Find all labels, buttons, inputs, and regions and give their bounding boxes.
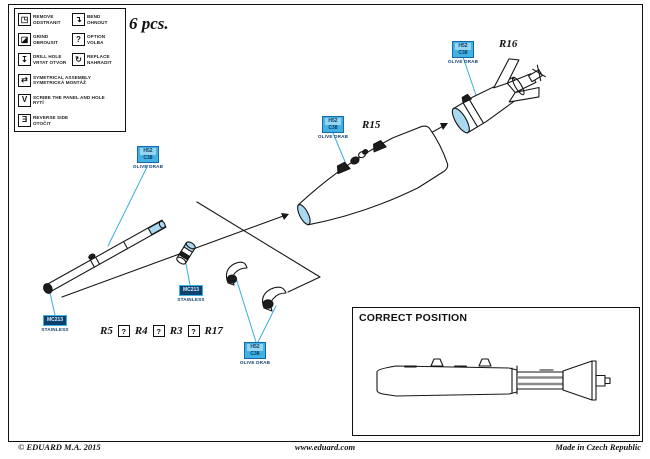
legend-symmetrical-cz: SYMETRICKÁ MONTÁŽ [33, 80, 91, 86]
paint-name-label: STAINLESS [41, 327, 68, 332]
option-icon: ? [72, 33, 85, 46]
paint-code-box: H52 C38 [452, 41, 474, 58]
symmetrical-assembly-icon: ⇄ [18, 74, 31, 87]
correct-position-title: CORRECT POSITION [359, 312, 467, 324]
part-label-r15: R15 [362, 119, 380, 131]
legend-item-reverse: Ǝ REVERSE SIDEOTOČIT [18, 114, 122, 127]
legend-box: ◳ REMOVEODSTRANIT ↴ BENDOHNOUT ◪ GRINDOB… [14, 8, 126, 132]
replace-icon: ↻ [72, 53, 85, 66]
footer-made-in: Made in Czech Republic [555, 442, 641, 452]
option-icon: ? [118, 325, 130, 337]
steel-code-box: MC213 [43, 315, 67, 326]
scoop-part-2 [263, 287, 286, 311]
part-label-r3: R3 [170, 325, 183, 337]
reverse-side-icon: Ǝ [18, 114, 31, 127]
steel-code-box: MC213 [179, 285, 203, 296]
footer-website: www.eduard.com [0, 442, 650, 452]
paint-name-label: OLIVE DRAB [448, 59, 478, 64]
legend-remove-cz: ODSTRANIT [33, 20, 61, 26]
legend-item-grind: ◪ GRINDOBROUSIT [18, 33, 68, 46]
legend-item-option: ? OPTIONVOLBA [72, 33, 122, 46]
part-label-r4: R4 [135, 325, 148, 337]
paint-code-c: C38 [325, 125, 341, 132]
legend-item-drill: ↧ DRILL HOLEVRTAT OTVOR [18, 53, 68, 66]
legend-grind-cz: OBROUSIT [33, 40, 58, 46]
paint-callout-olive-r15: H52 C38 OLIVE DRAB [307, 116, 359, 139]
paint-code-box: H52 C38 [137, 146, 159, 163]
remove-icon: ◳ [18, 13, 31, 26]
part-label-r17: R17 [205, 325, 223, 337]
paint-code-c: C38 [247, 351, 263, 358]
legend-option-cz: VOLBA [87, 40, 105, 46]
scribe-icon: V [18, 94, 31, 107]
legend-bend-cz: OHNOUT [87, 20, 108, 26]
pcs-count-label: 6 pcs. [129, 14, 169, 34]
correct-position-panel: CORRECT POSITION [352, 307, 640, 436]
legend-item-symmetrical: ⇄ SYMETRICAL ASSEMBLYSYMETRICKÁ MONTÁŽ [18, 74, 122, 87]
legend-drill-cz: VRTAT OTVOR [33, 60, 66, 66]
paint-name-label: OLIVE DRAB [240, 360, 270, 365]
legend-item-remove: ◳ REMOVEODSTRANIT [18, 13, 68, 26]
part-label-r16: R16 [499, 38, 517, 50]
paint-callout-stainless-left: MC213 STAINLESS [29, 315, 81, 332]
drill-hole-icon: ↧ [18, 53, 31, 66]
paint-callout-olive-left: H52 C38 OLIVE DRAB [122, 146, 174, 169]
paint-name-label: STAINLESS [177, 297, 204, 302]
legend-item-scribe: V SCRIBE THE PANEL AND HOLERYTÍ [18, 94, 122, 107]
paint-code-box: H52 C38 [322, 116, 344, 133]
paint-name-label: OLIVE DRAB [318, 134, 348, 139]
paint-code-c: C38 [455, 50, 471, 57]
bend-icon: ↴ [72, 13, 85, 26]
paint-callout-olive-r16: H52 C38 OLIVE DRAB [437, 41, 489, 64]
option-icon: ? [153, 325, 165, 337]
paint-callout-olive-bottom: H52 C38 OLIVE DRAB [229, 342, 281, 365]
legend-reverse-cz: OTOČIT [33, 121, 68, 127]
grind-icon: ◪ [18, 33, 31, 46]
paint-code-box: H52 C38 [244, 342, 266, 359]
paint-callout-stainless-mid: MC213 STAINLESS [165, 285, 217, 302]
legend-scribe-cz: RYTÍ [33, 100, 105, 106]
option-icon: ? [188, 325, 200, 337]
part-option-row: R5 ? R4 ? R3 ? R17 [100, 325, 223, 337]
fuze-part [176, 241, 197, 266]
legend-item-replace: ↻ REPLACENAHRADIT [72, 53, 122, 66]
paint-name-label: OLIVE DRAB [133, 164, 163, 169]
legend-reverse-en: REVERSE SIDE [33, 115, 68, 121]
legend-item-bend: ↴ BENDOHNOUT [72, 13, 122, 26]
rod-part [40, 216, 167, 295]
legend-replace-cz: NAHRADIT [87, 60, 112, 66]
part-label-r5: R5 [100, 325, 113, 337]
paint-code-c: C38 [140, 155, 156, 162]
